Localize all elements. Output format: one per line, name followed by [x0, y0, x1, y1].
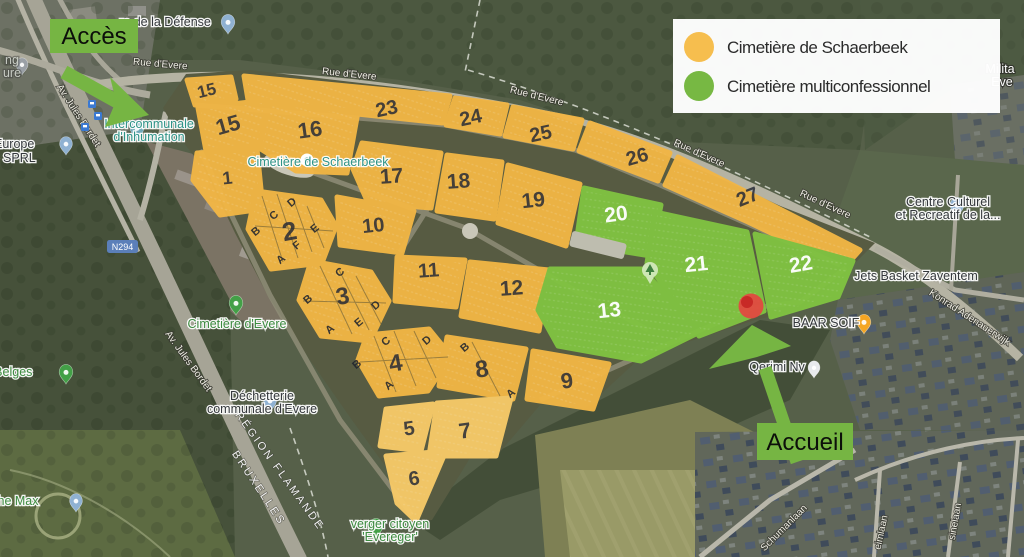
map-legend: Cimetière de Schaerbeek Cimetière multic…	[673, 19, 1000, 113]
poi-label-centre-culturel-1[interactable]: Centre Culturel	[906, 195, 990, 209]
poi-label-cimetiere-schaerbeek[interactable]: Cimetière de Schaerbeek	[247, 155, 389, 169]
poi-label-centre-culturel-2[interactable]: et Recreatif de la...	[896, 208, 1001, 222]
plot-number-20: 20	[603, 202, 629, 228]
poi-label-verger-2[interactable]: 'Evereger'	[362, 530, 418, 544]
route-shield-n294-label: N294	[112, 242, 134, 252]
poi-label-cimetiere-evere[interactable]: Cimetière d'Evere	[188, 317, 287, 331]
accueil-callout-label: Accueil	[766, 429, 843, 456]
legend-swatch-schaerbeek	[684, 32, 714, 62]
plot-number-23: 23	[374, 96, 400, 122]
accueil-callout: Accueil	[757, 423, 853, 460]
plot-number-19: 19	[521, 188, 547, 213]
acces-callout: Accès	[50, 19, 138, 53]
poi-label-volt-2[interactable]: gium) SPRL	[0, 151, 36, 165]
legend-label-schaerbeek: Cimetière de Schaerbeek	[727, 38, 908, 57]
plot-number-12: 12	[499, 276, 524, 301]
poi-label-adolphe-max[interactable]: Adolphe Max	[0, 494, 39, 508]
poi-label-intercommunale-2[interactable]: d'Inhumation	[113, 130, 184, 144]
poi-label-dechetterie-2[interactable]: communale d'Evere	[207, 402, 317, 416]
poi-label-parking-2[interactable]: ure	[3, 66, 21, 80]
plot-number-18: 18	[446, 169, 471, 194]
bus-stop-icon-2[interactable]	[94, 112, 102, 120]
poi-label-verger-1[interactable]: verger citoyen	[351, 517, 430, 531]
poi-label-volt-1[interactable]: Volt Europe	[0, 137, 34, 151]
plot-number-11: 11	[417, 259, 440, 282]
legend-label-multiconfessionnel: Cimetière multiconfessionnel	[727, 77, 930, 96]
route-shield-n294: N294	[107, 240, 138, 253]
plot-number-1: 1	[221, 168, 233, 189]
plot-number-13: 13	[597, 298, 623, 323]
entrance-marker	[739, 294, 764, 319]
poi-label-dechetterie-1[interactable]: Déchetterie	[230, 389, 294, 403]
poi-label-jets-basket[interactable]: Jets Basket Zaventem	[854, 269, 978, 283]
bus-stop-icon-3[interactable]	[81, 123, 89, 131]
acces-callout-label: Accès	[61, 23, 126, 50]
poi-label-parking-1[interactable]: ng	[5, 53, 19, 67]
satellite-map[interactable]: 15 15 16 23 24 25 26 27 1 2 17 18 19 10 …	[0, 0, 1024, 557]
poi-label-qerimi[interactable]: Qerimi Nv	[749, 360, 805, 374]
bus-stop-icon-1[interactable]	[88, 100, 96, 108]
poi-label-baar-soif[interactable]: BAAR SOIF	[793, 316, 860, 330]
plot-number-16: 16	[296, 115, 324, 143]
plot-number-25: 25	[528, 121, 554, 147]
plot-number-21: 21	[684, 252, 710, 277]
legend-swatch-multiconfessionnel	[684, 71, 714, 101]
plot-number-10: 10	[361, 214, 385, 238]
plot-number-22: 22	[787, 251, 814, 278]
poi-label-aires-belges[interactable]: aires Belges	[0, 365, 32, 379]
